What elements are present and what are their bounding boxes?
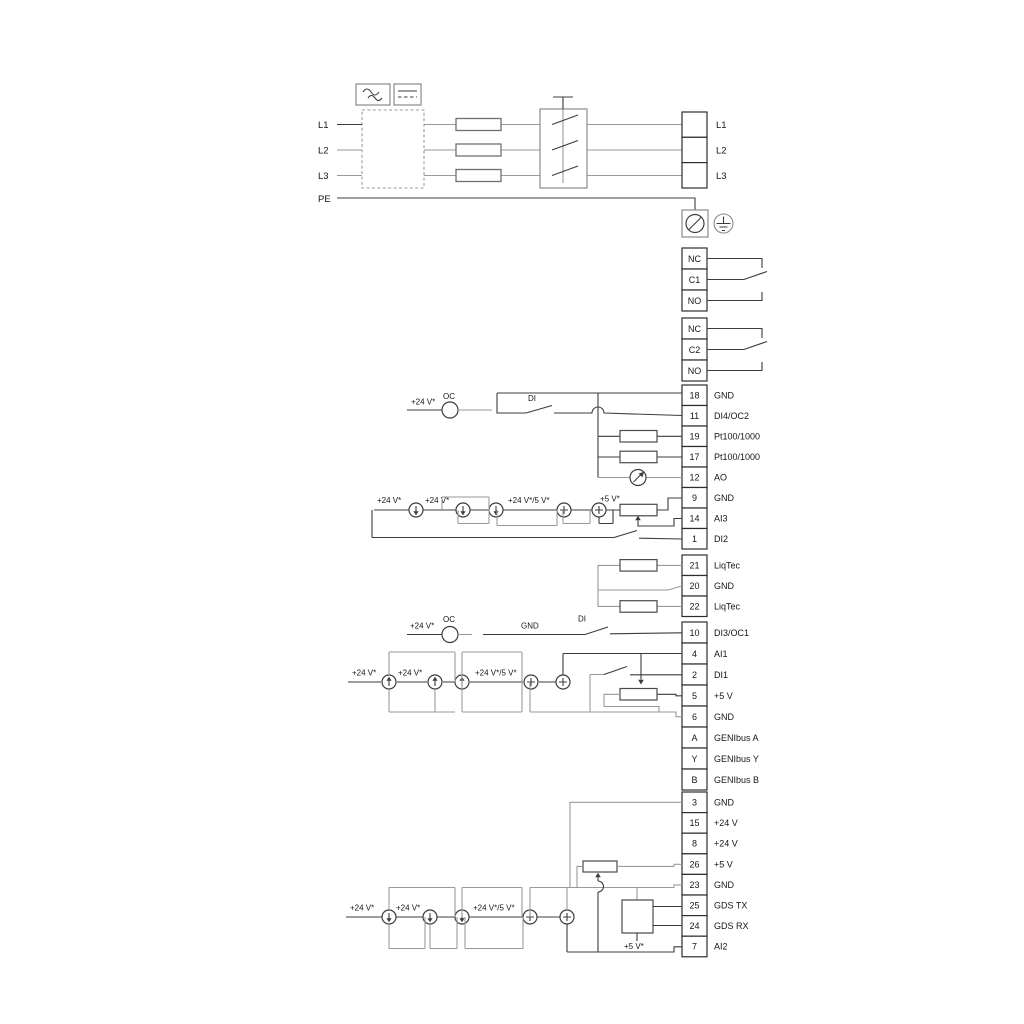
voltage-source-icon <box>557 503 571 517</box>
switch-icon <box>585 627 608 635</box>
resistor-icon-liqtec-21 <box>620 560 657 572</box>
terminal-label: GND <box>714 712 735 722</box>
label-5v: +5 V* <box>624 942 644 951</box>
fuse-l2-icon <box>456 144 501 156</box>
terminal-label: DI4/OC2 <box>714 411 749 421</box>
current-source-icon <box>409 503 423 517</box>
switch-icon <box>604 667 627 675</box>
potentiometer-icon <box>620 689 657 701</box>
ai3-cluster: +24 V* +24 V* +24 V*/5 V* +5 V* <box>372 495 682 540</box>
resistor-icon-liqtec-22 <box>620 601 657 613</box>
filter-box <box>362 110 424 188</box>
terminal-number: A <box>691 733 697 743</box>
label-5v: +5 V* <box>600 495 620 504</box>
wiper-arrow-icon <box>635 516 641 521</box>
resistor-icon-pt100-19 <box>620 431 657 443</box>
potentiometer-icon <box>583 861 617 872</box>
label-oc: OC <box>443 392 455 401</box>
terminal-number: 15 <box>689 818 699 828</box>
terminal-strip-3: 3 GND 15 +24 V 8 +24 V 26 +5 V 23 GND 25… <box>682 792 749 957</box>
current-source-icon <box>382 910 396 924</box>
terminal-label: AI3 <box>714 514 728 524</box>
strip3-wiring: +5 V* <box>570 802 682 952</box>
terminal-number: 22 <box>689 602 699 612</box>
label-24v: +24 V* <box>350 904 374 913</box>
wire-hop-icon <box>598 881 604 892</box>
terminal-label: DI3/OC1 <box>714 628 749 638</box>
label-24v-5v: +24 V*/5 V* <box>475 669 517 678</box>
label-di: DI <box>528 394 536 403</box>
terminal-number: 14 <box>689 514 699 524</box>
gds-sensor-box <box>622 900 653 933</box>
wiper-arrow-icon <box>638 680 644 685</box>
terminal-label: GND <box>714 493 735 503</box>
terminal-number: 7 <box>692 942 697 952</box>
terminal-cell <box>682 163 707 188</box>
voltage-source-icon <box>560 910 574 924</box>
terminal-label: GENIbus A <box>714 733 759 743</box>
terminal-label: GDS TX <box>714 901 747 911</box>
terminal-label: +24 V <box>714 818 738 828</box>
relay1-nc: NC <box>688 254 701 264</box>
earth-icon <box>714 214 733 233</box>
strip1-wiring: +24 V* OC DI <box>407 392 682 486</box>
dc-symbol-icon <box>394 84 421 105</box>
terminal-number: Y <box>691 754 697 764</box>
meter-icon-ao <box>630 470 646 486</box>
label-24v-5v: +24 V*/5 V* <box>473 904 515 913</box>
terminal-number: 10 <box>689 628 699 638</box>
terminal-number: 8 <box>692 839 697 849</box>
label-24v: +24 V* <box>377 496 401 505</box>
terminal-number: 20 <box>689 581 699 591</box>
option-loops <box>389 888 570 918</box>
label-24v: +24 V* <box>352 669 376 678</box>
di3-row: +24 V* OC GND DI <box>407 615 682 643</box>
terminal-number: 4 <box>692 649 697 659</box>
current-source-icon <box>382 675 396 689</box>
terminal-label: GENIbus Y <box>714 754 759 764</box>
current-source-icon <box>428 675 442 689</box>
terminal-label: GND <box>714 798 735 808</box>
terminal-label: GDS RX <box>714 921 749 931</box>
input-label-l2: L2 <box>318 146 329 157</box>
main-switch-icon <box>540 97 587 188</box>
power-output-block: L1 L2 L3 <box>682 112 727 188</box>
relay-contact-icon <box>707 259 767 301</box>
output-label-l2: L2 <box>716 146 727 157</box>
ai1-cluster: +24 V* +24 V* +24 V*/5 V* <box>348 652 682 717</box>
relay1-no: NO <box>688 296 702 306</box>
relay1-block: NC C1 NO <box>682 248 767 311</box>
relay2-block: NC C2 NO <box>682 318 767 381</box>
label-24v-5v: +24 V*/5 V* <box>508 496 550 505</box>
terminal-number: 12 <box>689 473 699 483</box>
wiring-diagram-page: L1 L2 L3 PE <box>0 0 1024 1024</box>
wiper-arrow-icon <box>595 873 601 878</box>
terminal-label: LiqTec <box>714 602 741 612</box>
input-label-l1: L1 <box>318 120 329 131</box>
terminal-number: 11 <box>690 411 699 421</box>
resistor-icon-pt100-17 <box>620 451 657 463</box>
terminal-label: Pt100/1000 <box>714 432 760 442</box>
switch-icon <box>526 406 552 414</box>
wire-di4 <box>554 407 682 416</box>
relay2-c2: C2 <box>689 345 701 355</box>
terminal-label: +5 V <box>714 691 733 701</box>
power-input-section: L1 L2 L3 PE <box>318 84 733 237</box>
wiring-diagram: L1 L2 L3 PE <box>0 0 1024 1024</box>
terminal-number: 2 <box>692 670 697 680</box>
label-24v: +24 V* <box>396 904 420 913</box>
terminal-number: 3 <box>692 798 697 808</box>
terminal-label: Pt100/1000 <box>714 452 760 462</box>
voltage-source-icon <box>524 675 538 689</box>
label-24v: +24 V* <box>410 622 434 631</box>
terminal-number: 26 <box>689 859 699 869</box>
relay-contact-icon <box>707 329 767 371</box>
relay1-c1: C1 <box>689 275 701 285</box>
terminal-number: 1 <box>692 534 697 544</box>
terminal-label: DI2 <box>714 534 728 544</box>
relay2-nc: NC <box>688 324 701 334</box>
terminal-strip-1: 18 GND 11 DI4/OC2 19 Pt100/1000 17 Pt100… <box>682 385 760 549</box>
voltage-source-icon <box>556 675 570 689</box>
label-gnd: GND <box>521 622 539 631</box>
terminal-number: 5 <box>692 691 697 701</box>
switch-icon <box>614 531 637 538</box>
terminal-number: 17 <box>689 452 699 462</box>
output-label-l1: L1 <box>716 120 727 131</box>
terminal-number: 19 <box>689 432 699 442</box>
current-source-icon <box>489 503 503 517</box>
terminal-label: LiqTec <box>714 561 741 571</box>
label-24v: +24 V* <box>411 398 435 407</box>
terminal-cell <box>682 137 707 162</box>
liqtec-block: 21 LiqTec 20 GND 22 LiqTec <box>598 555 741 617</box>
terminal-number: B <box>691 775 697 785</box>
fuse-l3-icon <box>456 170 501 182</box>
voltage-source-icon <box>592 503 606 517</box>
wire-pe <box>337 198 695 210</box>
fuse-l1-icon <box>456 119 501 131</box>
terminal-number: 6 <box>692 712 697 722</box>
open-collector-icon <box>442 402 458 418</box>
open-collector-icon <box>442 627 458 643</box>
terminal-label: DI1 <box>714 670 728 680</box>
input-label-pe: PE <box>318 194 331 205</box>
terminal-label: GND <box>714 880 735 890</box>
terminal-label: AI2 <box>714 942 728 952</box>
ground-screw-icon <box>682 210 708 237</box>
fuse-icons <box>456 119 501 182</box>
ai2-cluster: +24 V* +24 V* +24 V*/5 V* <box>346 888 598 953</box>
terminal-label: GENIbus B <box>714 775 759 785</box>
terminal-cell <box>682 112 707 137</box>
terminal-label: +24 V <box>714 839 738 849</box>
label-24v: +24 V* <box>398 669 422 678</box>
terminal-label: AI1 <box>714 649 728 659</box>
potentiometer-icon <box>620 504 657 516</box>
wire-power-runs <box>337 125 682 176</box>
input-label-l3: L3 <box>318 171 329 182</box>
terminal-number: 9 <box>692 493 697 503</box>
output-label-l3: L3 <box>716 171 727 182</box>
terminal-label: AO <box>714 473 727 483</box>
ac-symbol-icon <box>356 84 390 105</box>
terminal-label: GND <box>714 391 735 401</box>
terminal-number: 23 <box>689 880 699 890</box>
terminal-number: 21 <box>689 561 699 571</box>
terminal-strip-2: 10 DI3/OC1 4 AI1 2 DI1 5 +5 V 6 GND A GE… <box>682 622 759 790</box>
label-di: DI <box>578 615 586 624</box>
terminal-number: 18 <box>689 391 699 401</box>
relay2-no: NO <box>688 366 702 376</box>
label-oc: OC <box>443 615 455 624</box>
option-loops <box>389 917 523 949</box>
terminal-label: GND <box>714 581 735 591</box>
terminal-number: 24 <box>689 921 699 931</box>
terminal-number: 25 <box>689 901 699 911</box>
terminal-label: +5 V <box>714 859 733 869</box>
